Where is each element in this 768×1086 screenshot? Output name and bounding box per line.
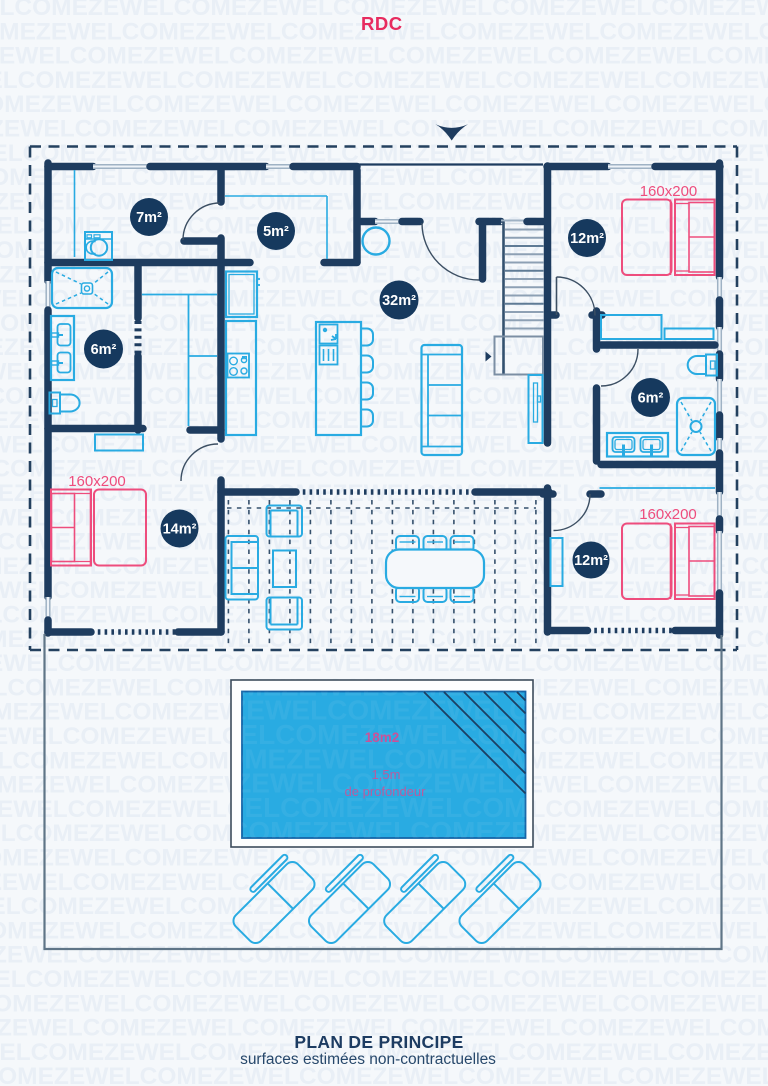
svg-text:WELCOMEZEWELCOMEZEWELCOMEZEWEL: WELCOMEZEWELCOMEZEWELCOMEZEWELCOMEZEWELC… [0,650,768,677]
svg-text:WELCOMEZEWELCOMEZEWELCOMEZEWEL: WELCOMEZEWELCOMEZEWELCOMEZEWELCOMEZEWELC… [0,845,768,872]
svg-text:WELCOMEZEWELCOMEZEWELCOMEZEWEL: WELCOMEZEWELCOMEZEWELCOMEZEWELCOMEZEWELC… [0,869,768,896]
svg-text:12m²: 12m² [570,231,604,247]
svg-text:WELCOMEZEWELCOMEZEWELCOMEZEWEL: WELCOMEZEWELCOMEZEWELCOMEZEWELCOMEZEWELC… [0,67,768,94]
svg-text:WELCOMEZEWELCOMEZEWELCOMEZEWEL: WELCOMEZEWELCOMEZEWELCOMEZEWELCOMEZEWELC… [0,310,768,337]
svg-text:WELCOMEZEWELCOMEZEWELCOMEZEWEL: WELCOMEZEWELCOMEZEWELCOMEZEWELCOMEZEWELC… [0,990,768,1017]
svg-text:18m2: 18m2 [365,730,400,745]
svg-text:WELCOMEZEWELCOMEZEWELCOMEZEWEL: WELCOMEZEWELCOMEZEWELCOMEZEWELCOMEZEWELC… [0,577,768,604]
svg-text:RDC: RDC [361,13,403,34]
svg-text:WELCOMEZEWELCOMEZEWELCOMEZEWEL: WELCOMEZEWELCOMEZEWELCOMEZEWELCOMEZEWELC… [0,602,768,629]
svg-text:7m²: 7m² [136,210,162,226]
svg-text:12m²: 12m² [574,553,608,569]
svg-text:5m²: 5m² [263,224,289,240]
svg-text:1,5m: 1,5m [372,767,401,782]
svg-text:6m²: 6m² [91,342,117,358]
svg-text:6m²: 6m² [638,391,664,407]
svg-text:WELCOMEZEWELCOMEZEWELCOMEZEWEL: WELCOMEZEWELCOMEZEWELCOMEZEWELCOMEZEWELC… [0,213,768,240]
svg-text:WELCOMEZEWELCOMEZEWELCOMEZEWEL: WELCOMEZEWELCOMEZEWELCOMEZEWELCOMEZEWELC… [0,43,768,70]
svg-text:de profondeur: de profondeur [345,784,427,799]
svg-text:WELCOMEZEWELCOMEZEWELCOMEZEWEL: WELCOMEZEWELCOMEZEWELCOMEZEWELCOMEZEWELC… [0,942,768,969]
svg-text:WELCOMEZEWELCOMEZEWELCOMEZEWEL: WELCOMEZEWELCOMEZEWELCOMEZEWELCOMEZEWELC… [0,893,768,920]
svg-text:WELCOMEZEWELCOMEZEWELCOMEZEWEL: WELCOMEZEWELCOMEZEWELCOMEZEWELCOMEZEWELC… [0,116,768,143]
svg-text:160x200: 160x200 [68,473,126,490]
svg-text:14m²: 14m² [163,522,197,538]
svg-text:160x200: 160x200 [640,183,698,200]
svg-text:WELCOMEZEWELCOMEZEWELCOMEZEWEL: WELCOMEZEWELCOMEZEWELCOMEZEWELCOMEZEWELC… [0,140,768,167]
svg-text:WELCOMEZEWELCOMEZEWELCOMEZEWEL: WELCOMEZEWELCOMEZEWELCOMEZEWELCOMEZEWELC… [0,529,768,556]
svg-text:WELCOMEZEWELCOMEZEWELCOMEZEWEL: WELCOMEZEWELCOMEZEWELCOMEZEWELCOMEZEWELC… [0,966,768,993]
svg-text:surfaces estimées non-contract: surfaces estimées non-contractuelles [240,1051,496,1068]
svg-text:PLAN DE PRINCIPE: PLAN DE PRINCIPE [294,1032,463,1052]
svg-text:WELCOMEZEWELCOMEZEWELCOMEZEWEL: WELCOMEZEWELCOMEZEWELCOMEZEWELCOMEZEWELC… [0,91,768,118]
svg-text:160x200: 160x200 [639,506,697,523]
svg-text:32m²: 32m² [382,293,416,309]
